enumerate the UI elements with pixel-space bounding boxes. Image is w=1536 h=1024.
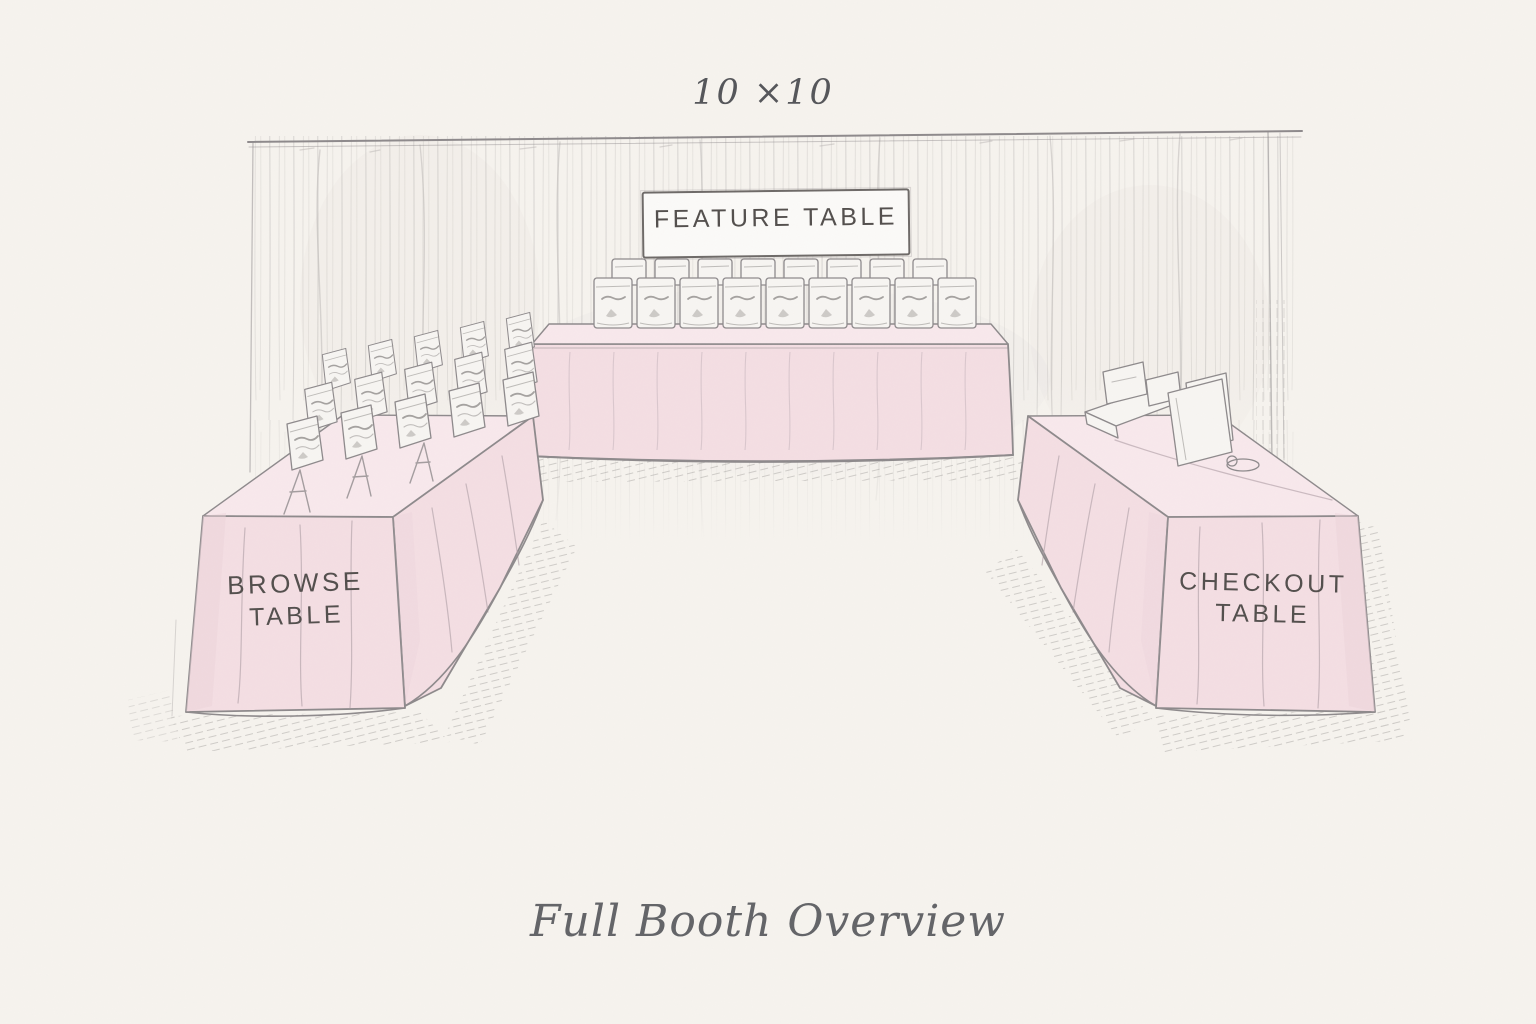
product-bag — [766, 278, 804, 328]
product-bag — [680, 278, 718, 328]
checkout-label-line1: CHECKOUT — [1179, 567, 1348, 599]
product-bag — [594, 278, 632, 328]
product-bag — [395, 394, 431, 448]
product-bag — [341, 405, 377, 459]
feature-bags-front-row — [594, 278, 976, 328]
browse-label-line2: TABLE — [249, 600, 345, 631]
feature-table — [527, 259, 1013, 462]
feature-table-sign: FEATURE TABLE — [641, 187, 912, 259]
product-bag — [852, 278, 890, 328]
browse-label-line1: BROWSE — [227, 566, 365, 601]
booth-size-label: 10 ×10 — [692, 73, 834, 113]
product-bag — [723, 278, 761, 328]
product-bag — [503, 372, 539, 426]
checkout-label-line2: TABLE — [1215, 599, 1310, 629]
booth-illustration: 10 ×10 FEATURE TABLE — [0, 0, 1536, 1024]
product-bag — [287, 416, 323, 470]
product-bag — [637, 278, 675, 328]
product-bag — [938, 278, 976, 328]
booth-sketch-canvas: 10 ×10 FEATURE TABLE — [0, 0, 1536, 1024]
upright-packet-front — [1168, 379, 1232, 466]
product-bag — [809, 278, 847, 328]
caption-title: Full Booth Overview — [529, 896, 1006, 947]
product-bag — [449, 383, 485, 437]
feature-table-skirt — [527, 344, 1013, 461]
product-bag — [895, 278, 933, 328]
feature-sign-label: FEATURE TABLE — [654, 203, 898, 234]
